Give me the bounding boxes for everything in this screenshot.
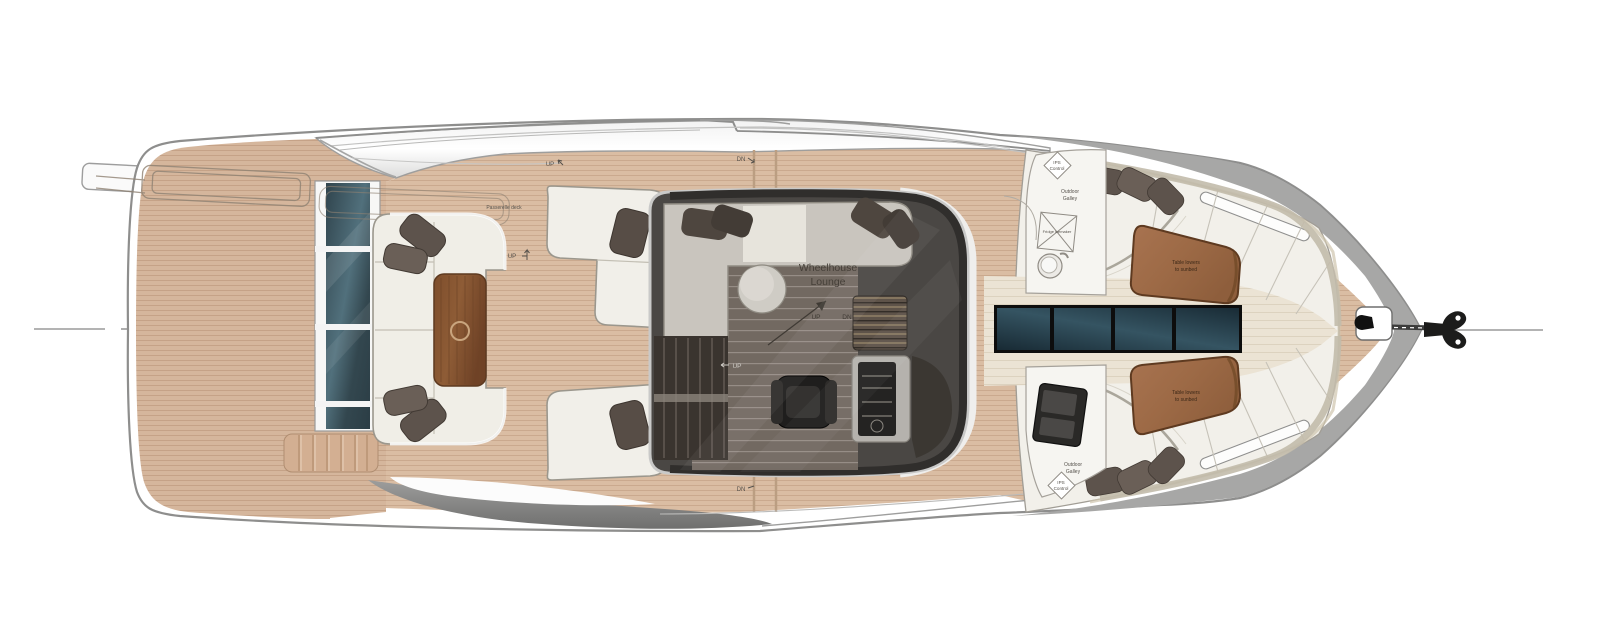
svg-text:DN: DN xyxy=(737,487,746,493)
svg-text:IPS: IPS xyxy=(1057,480,1064,485)
svg-text:to sunbed: to sunbed xyxy=(1175,267,1197,273)
svg-text:Control: Control xyxy=(1054,486,1069,491)
svg-text:IPS: IPS xyxy=(1053,160,1060,165)
svg-text:DN: DN xyxy=(842,314,852,321)
svg-text:Passerelle deck: Passerelle deck xyxy=(486,205,522,211)
svg-text:Galley: Galley xyxy=(1063,196,1078,202)
svg-text:Control: Control xyxy=(1050,166,1065,171)
svg-text:Outdoor: Outdoor xyxy=(1064,462,1082,468)
svg-text:DN: DN xyxy=(737,157,746,163)
svg-text:Outdoor: Outdoor xyxy=(1061,189,1079,195)
svg-text:UP: UP xyxy=(811,314,820,321)
svg-text:to sunbed: to sunbed xyxy=(1175,397,1197,403)
svg-text:UP: UP xyxy=(508,254,516,260)
svg-text:Galley: Galley xyxy=(1066,469,1081,475)
svg-text:Table lowers: Table lowers xyxy=(1172,260,1200,266)
svg-text:UP: UP xyxy=(546,162,554,168)
svg-text:UP: UP xyxy=(732,363,741,370)
svg-text:Fridge icemaker: Fridge icemaker xyxy=(1043,229,1072,234)
svg-text:Table lowers: Table lowers xyxy=(1172,390,1200,396)
svg-text:Wheelhouse: Wheelhouse xyxy=(799,262,858,274)
svg-text:Lounge: Lounge xyxy=(810,276,845,288)
